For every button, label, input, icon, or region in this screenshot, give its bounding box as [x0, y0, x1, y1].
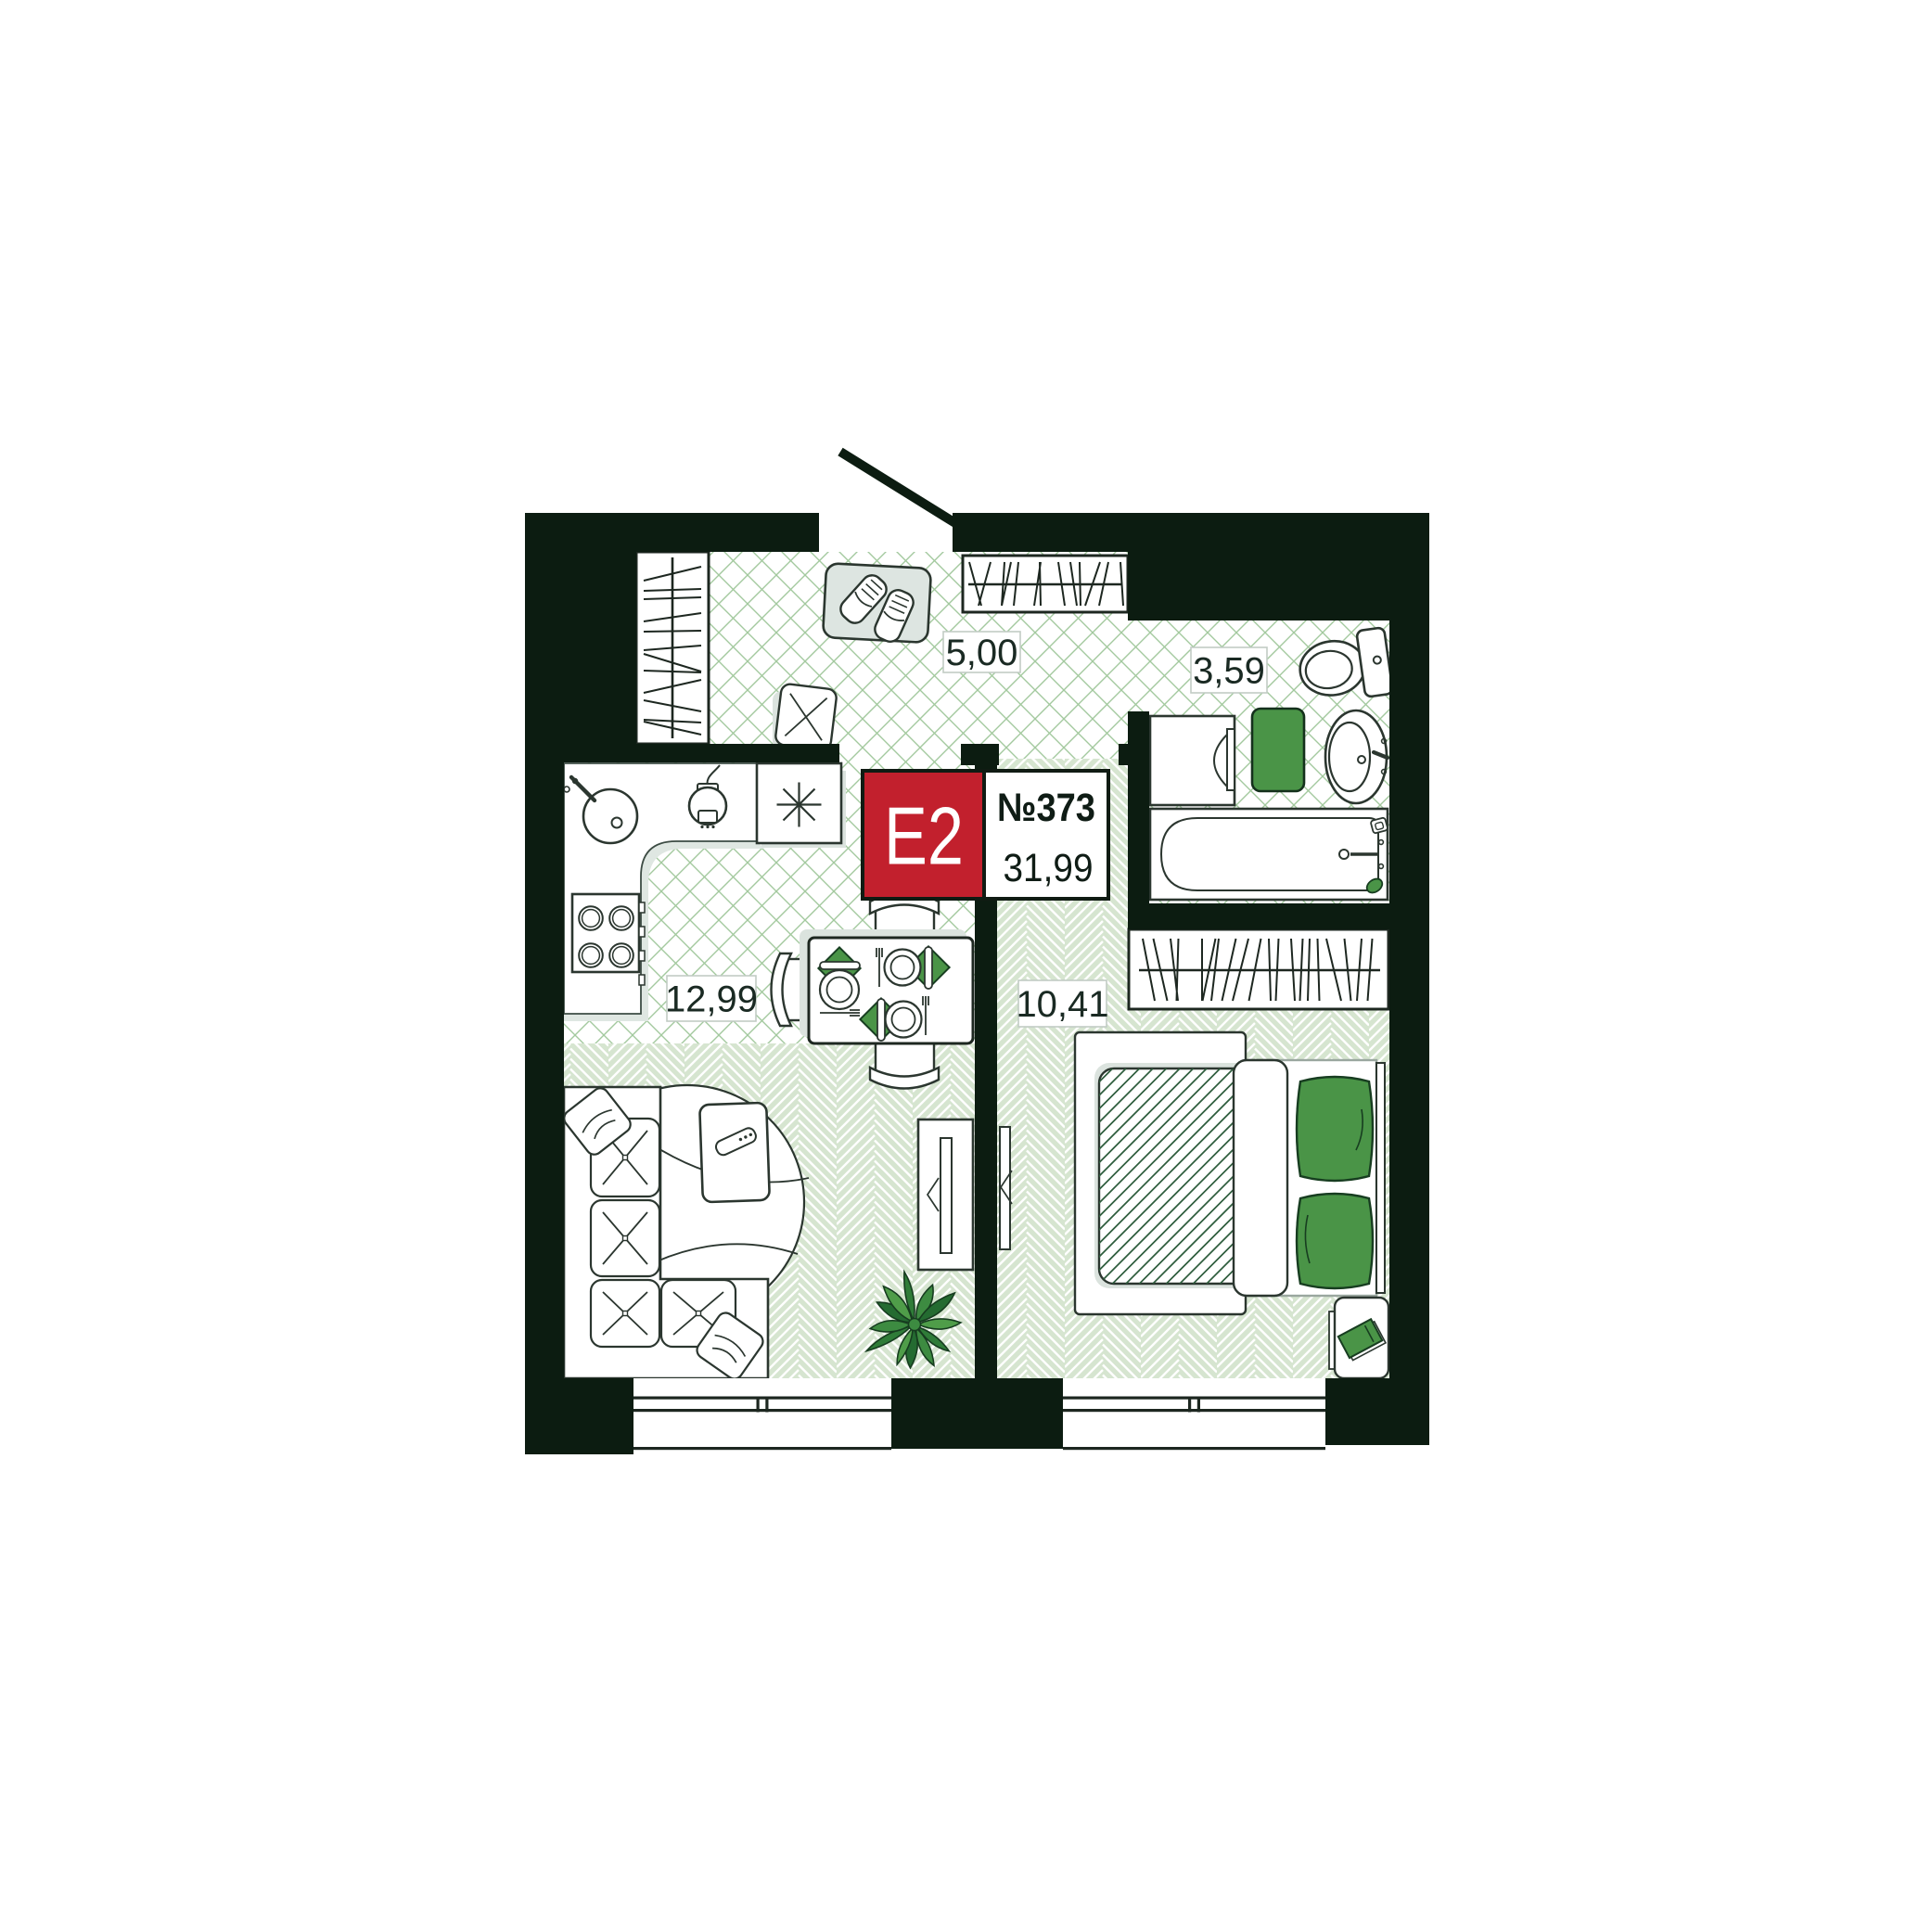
svg-text:31,99: 31,99 — [1004, 846, 1094, 890]
svg-text:№373: №373 — [997, 786, 1095, 830]
svg-text:10,41: 10,41 — [1016, 984, 1108, 1025]
svg-text:12,99: 12,99 — [665, 979, 758, 1020]
svg-text:E2: E2 — [884, 790, 964, 882]
svg-text:5,00: 5,00 — [946, 633, 1018, 673]
svg-text:3,59: 3,59 — [1193, 651, 1265, 692]
